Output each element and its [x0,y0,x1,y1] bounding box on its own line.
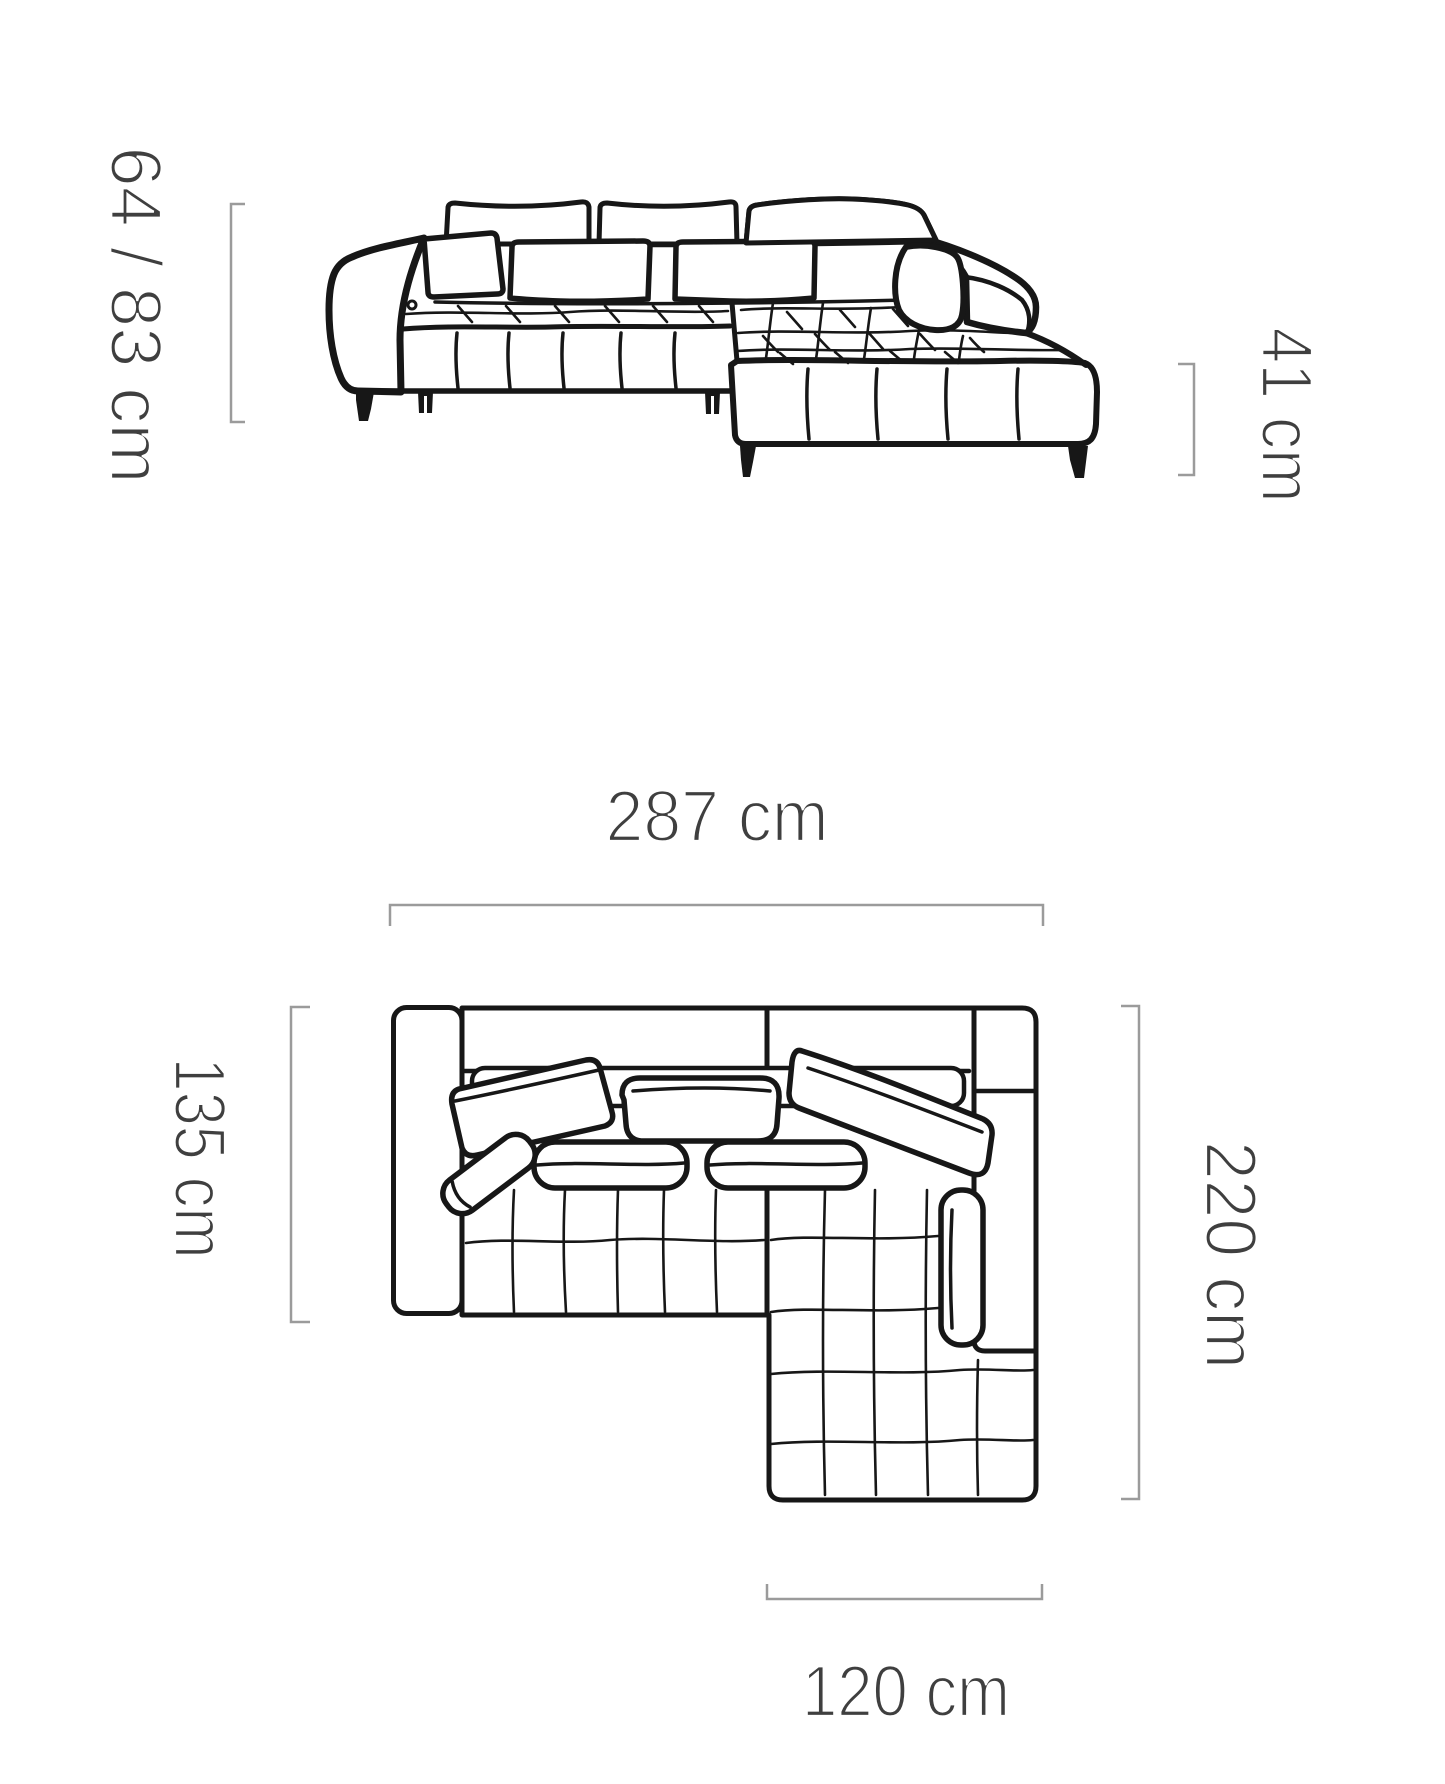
svg-text:64 / 83 cm: 64 / 83 cm [95,147,175,484]
svg-text:220 cm: 220 cm [1190,1141,1270,1369]
svg-text:135 cm: 135 cm [159,1058,239,1259]
svg-text:287 cm: 287 cm [606,777,829,857]
svg-text:41 cm: 41 cm [1246,328,1326,503]
svg-text:120 cm: 120 cm [802,1652,1010,1732]
